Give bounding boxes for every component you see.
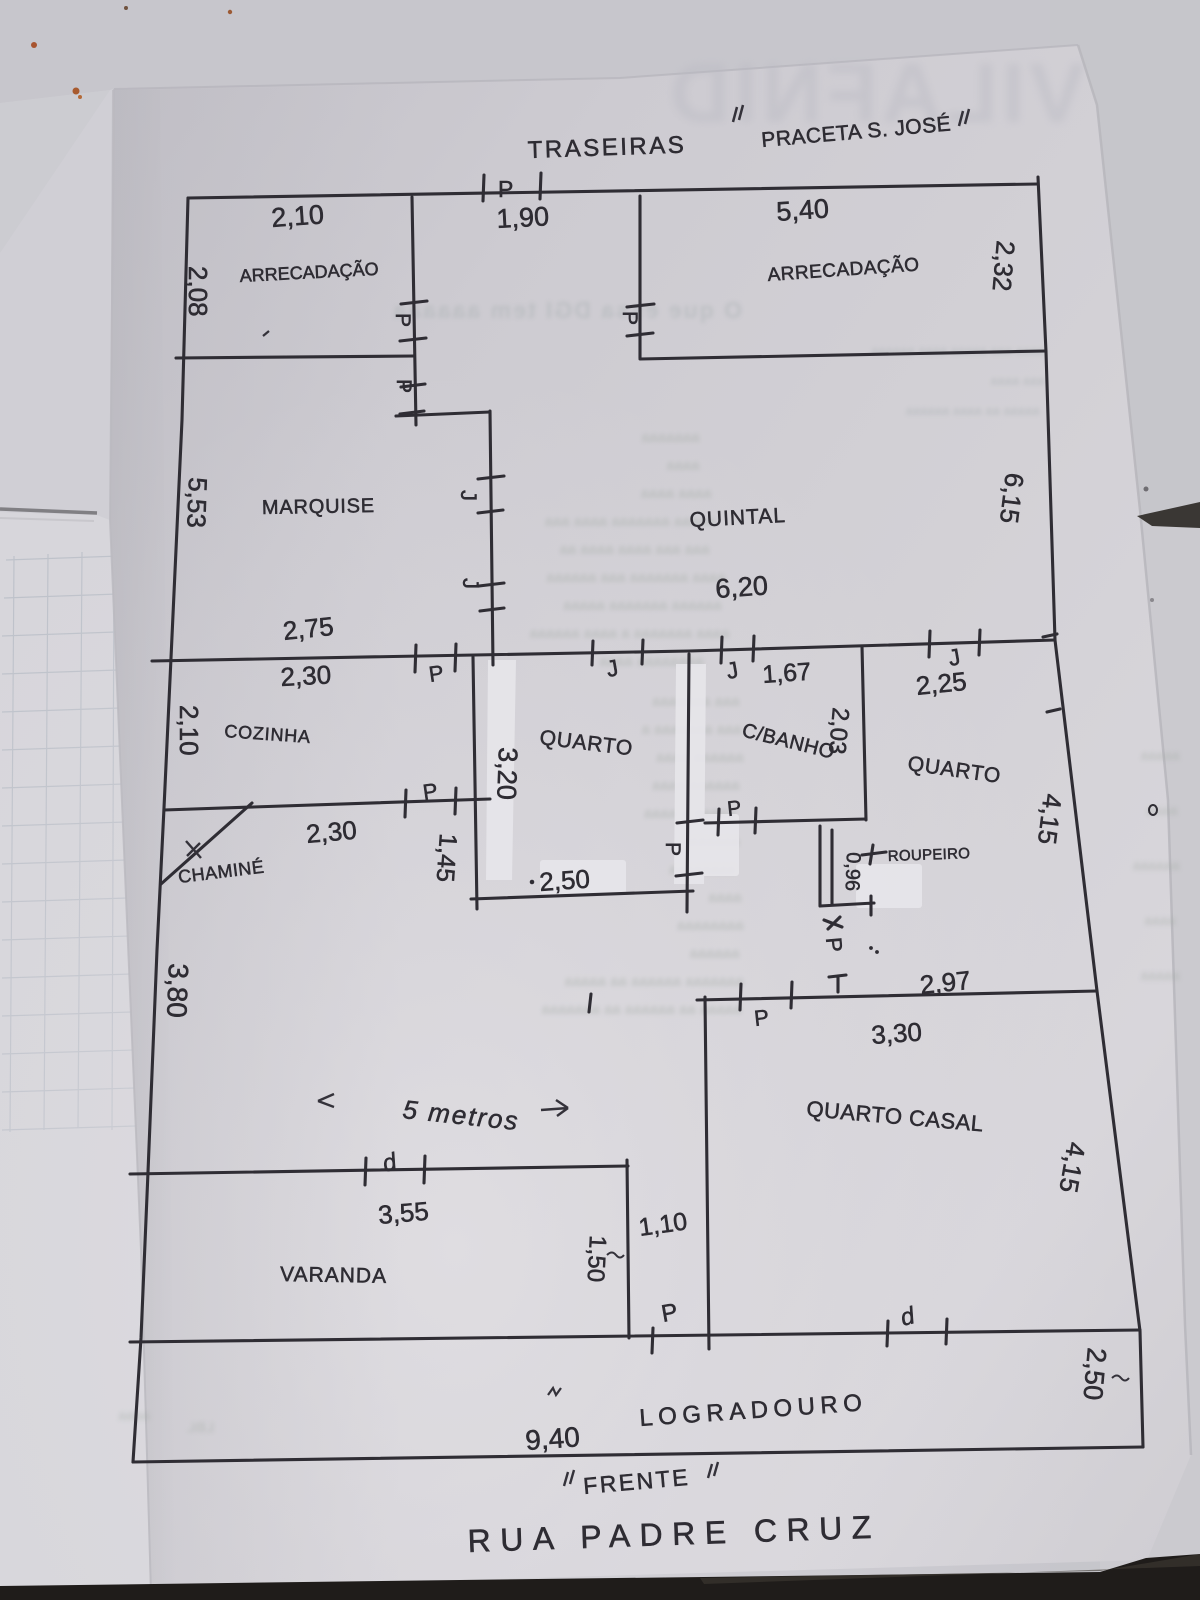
svg-text:1,67: 1,67 (761, 658, 812, 689)
svg-text:5,40: 5,40 (775, 193, 830, 227)
svg-text:MARQUISE: MARQUISE (262, 495, 375, 519)
svg-text:0,96: 0,96 (841, 852, 864, 892)
svg-text:aaaa: aaaa (666, 457, 700, 474)
svg-text:P: P (661, 842, 684, 856)
svg-text:5,53: 5,53 (181, 477, 213, 529)
svg-text:TRASEIRAS: TRASEIRAS (527, 131, 686, 164)
svg-text:3,55: 3,55 (377, 1196, 430, 1230)
svg-text:O que essa DGI tem aaaaaa: O que essa DGI tem aaaaaa (392, 297, 742, 323)
svg-text:2,30: 2,30 (280, 659, 332, 692)
svg-text:2,10: 2,10 (174, 705, 204, 756)
svg-text:aaaa aaaa: aaaa aaaa (640, 485, 712, 502)
svg-text:3,80: 3,80 (161, 963, 194, 1019)
svg-text:aaaaaa: aaaaaa (689, 945, 740, 962)
svg-text:aaaaaaa aaaaaa aa aaaaa: aaaaaaa aaaaaa aa aaaaa (564, 973, 744, 990)
svg-text:P: P (392, 379, 415, 393)
svg-text:J: J (458, 578, 483, 589)
svg-text:P: P (618, 311, 641, 325)
svg-text:P: P (498, 176, 513, 202)
svg-text:3,20: 3,20 (491, 747, 523, 801)
svg-text:P: P (726, 797, 742, 821)
svg-text:ROUPEIRO: ROUPEIRO (888, 845, 971, 865)
svg-text:9,40: 9,40 (524, 1421, 581, 1456)
svg-text:2,30: 2,30 (305, 815, 358, 849)
svg-text:2,03: 2,03 (823, 706, 854, 755)
svg-text:aaaaaaaa: aaaaaaaa (677, 917, 744, 934)
svg-text:1,90: 1,90 (496, 201, 550, 234)
svg-text:aaa aaa aaaa aaaa aa: aaa aaa aaaa aaaa aa (559, 541, 710, 558)
svg-text:aaaaa: aaaaa (1141, 747, 1180, 763)
svg-text:aaaaaa: aaaaaa (1133, 857, 1180, 873)
svg-text:aaaa aaaaaaa aaa aaaaaa: aaaa aaaaaaa aaa aaaaaa (546, 569, 726, 586)
svg-text:4,15: 4,15 (1032, 792, 1068, 846)
svg-text:1,50: 1,50 (582, 1235, 611, 1283)
svg-text:aaaaaaa: aaaaaaa (641, 429, 700, 446)
svg-text:aaaaa aa aaaaaa aa aaaaaaa: aaaaa aa aaaaaa aa aaaaaaa (541, 1001, 742, 1018)
svg-text:2,50: 2,50 (538, 864, 591, 897)
svg-text:P: P (753, 1005, 770, 1031)
svg-text:aaaaaa aaaaaaa aaaaa: aaaaaa aaaaaaa aaaaa (563, 597, 722, 614)
svg-text:2,97: 2,97 (918, 965, 971, 1000)
svg-text:aaaaa: aaaaa (1141, 967, 1180, 983)
svg-text:3,30: 3,30 (870, 1017, 923, 1050)
svg-text:2,75: 2,75 (281, 611, 334, 646)
svg-text:J: J (456, 490, 481, 501)
svg-text:2,25: 2,25 (914, 666, 967, 701)
svg-text:2,32: 2,32 (987, 239, 1021, 292)
svg-text:LBL: LBL (186, 1419, 214, 1435)
svg-text:VARANDA: VARANDA (280, 1263, 387, 1288)
svg-text:aaaa: aaaa (708, 889, 742, 906)
svg-text:1,45: 1,45 (431, 833, 462, 884)
svg-text:aaa aaaa: aaa aaaa (990, 373, 1045, 388)
svg-text:6,15: 6,15 (994, 471, 1030, 525)
svg-text:6,20: 6,20 (714, 570, 769, 604)
svg-text:2,50: 2,50 (1077, 1346, 1111, 1401)
svg-text:aaaa aaaaaaa a aaaa aaaaaa: aaaa aaaaaaa a aaaa aaaaaa (529, 625, 730, 642)
svg-text:2,10: 2,10 (270, 199, 325, 233)
svg-text:P: P (391, 313, 414, 327)
svg-text:aaaaa aa aaaa aaaaaa: aaaaa aa aaaa aaaaaa (905, 403, 1040, 418)
svg-text:aaaa: aaaa (1145, 912, 1176, 928)
svg-text:2,08: 2,08 (183, 266, 213, 317)
svg-text:P: P (821, 936, 847, 953)
